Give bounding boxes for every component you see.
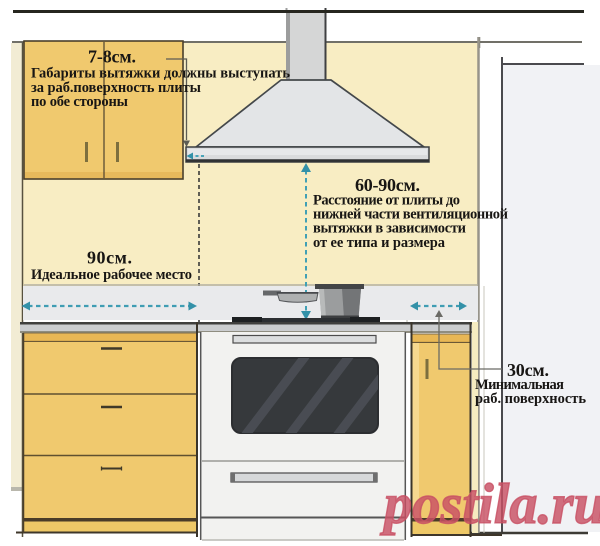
- svg-text:раб. поверхность: раб. поверхность: [475, 391, 586, 407]
- svg-text:postila.ru: postila.ru: [379, 473, 600, 536]
- svg-text:90см.: 90см.: [87, 248, 132, 268]
- svg-text:от ее типа и размера: от ее типа и размера: [313, 235, 446, 251]
- svg-text:Идеальное рабочее место: Идеальное рабочее место: [31, 267, 192, 283]
- svg-text:по обе стороны: по обе стороны: [31, 94, 128, 110]
- svg-text:7-8см.: 7-8см.: [88, 47, 136, 67]
